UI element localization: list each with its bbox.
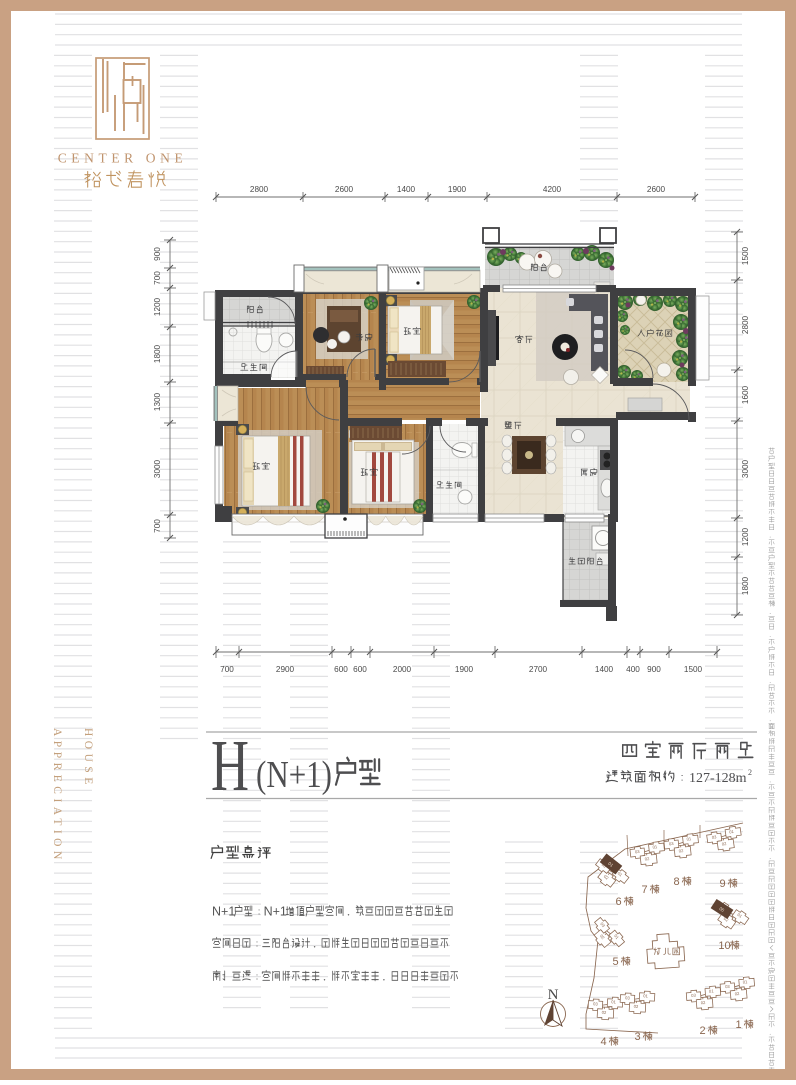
svg-text:1: 1 — [735, 1019, 741, 1031]
svg-text:(N+1): (N+1) — [256, 754, 332, 796]
svg-text:2900: 2900 — [276, 665, 295, 674]
svg-text:2600: 2600 — [647, 185, 666, 194]
svg-text:4200: 4200 — [543, 185, 562, 194]
svg-text:N+1: N+1 — [264, 905, 287, 919]
svg-text:6: 6 — [615, 896, 621, 908]
svg-text:1200: 1200 — [153, 297, 162, 316]
svg-text:3000: 3000 — [741, 459, 750, 478]
svg-text:2700: 2700 — [529, 665, 548, 674]
svg-text:1900: 1900 — [448, 185, 467, 194]
svg-text:1400: 1400 — [397, 185, 416, 194]
svg-text:4: 4 — [600, 1036, 606, 1048]
svg-text:2800: 2800 — [741, 315, 750, 334]
svg-text:127-128m: 127-128m — [689, 771, 747, 786]
svg-text:10: 10 — [718, 940, 730, 952]
svg-text:APPRECIATION: APPRECIATION — [51, 728, 63, 864]
svg-text:700: 700 — [220, 665, 234, 674]
svg-text:1800: 1800 — [153, 344, 162, 363]
svg-text:900: 900 — [153, 247, 162, 261]
svg-text:1400: 1400 — [595, 665, 614, 674]
svg-text:1600: 1600 — [741, 385, 750, 404]
svg-text:2800: 2800 — [250, 185, 269, 194]
svg-text:CENTER ONE: CENTER ONE — [58, 151, 188, 166]
svg-text:2600: 2600 — [335, 185, 354, 194]
svg-text:1800: 1800 — [741, 576, 750, 595]
svg-text:900: 900 — [647, 665, 661, 674]
svg-text:H: H — [211, 725, 249, 806]
svg-text:3000: 3000 — [153, 459, 162, 478]
svg-text:1500: 1500 — [684, 665, 703, 674]
svg-text:1300: 1300 — [153, 392, 162, 411]
svg-text:700: 700 — [153, 519, 162, 533]
svg-text:N+1: N+1 — [212, 905, 235, 919]
svg-text:9: 9 — [719, 878, 725, 890]
svg-text:2: 2 — [748, 768, 752, 777]
svg-text:700: 700 — [153, 271, 162, 285]
svg-text:5: 5 — [612, 956, 618, 968]
svg-text:HOUSE: HOUSE — [82, 728, 94, 789]
svg-text:1900: 1900 — [455, 665, 474, 674]
svg-text:400: 400 — [626, 665, 640, 674]
svg-text:600: 600 — [334, 665, 348, 674]
svg-text:2: 2 — [699, 1025, 705, 1037]
svg-text:1500: 1500 — [741, 246, 750, 265]
svg-text:3: 3 — [634, 1031, 640, 1043]
svg-text:1200: 1200 — [741, 527, 750, 546]
svg-text:2000: 2000 — [393, 665, 412, 674]
svg-text:7: 7 — [641, 884, 647, 896]
svg-text:600: 600 — [353, 665, 367, 674]
svg-text:8: 8 — [673, 876, 679, 888]
